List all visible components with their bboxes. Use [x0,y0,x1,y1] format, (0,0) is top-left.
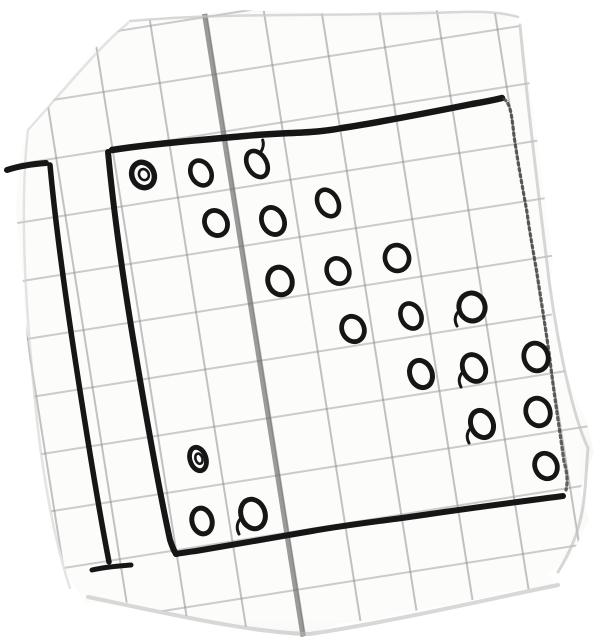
torn-graph-paper [0,0,600,641]
scanned-sketch-scene [0,0,600,641]
graph-paper-grid [0,0,600,641]
margin-grid-line [183,0,325,641]
